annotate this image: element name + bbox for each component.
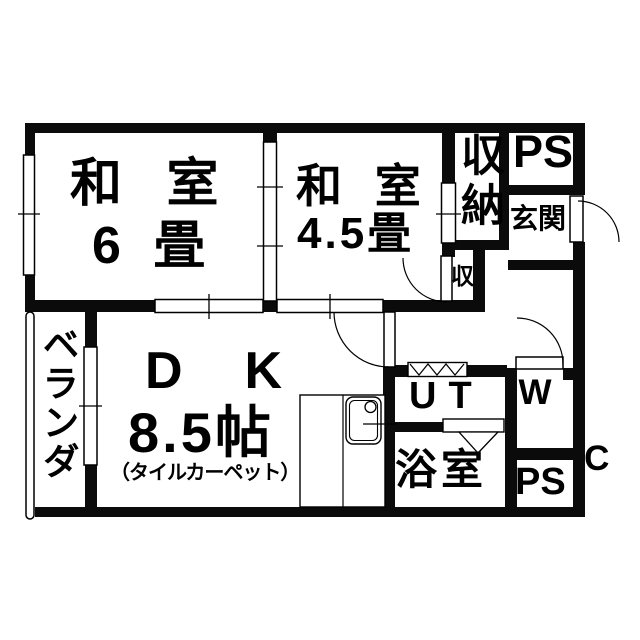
- wall-ps-genkan-divider: [499, 185, 585, 195]
- wall-bottom: [35, 507, 585, 517]
- window-washitsu6-left: [24, 155, 35, 275]
- door-arc-genkan: [578, 201, 619, 242]
- wall-wc-top-stub: [563, 368, 573, 380]
- wall-closet-right: [473, 250, 485, 302]
- label-washitsu45-name: 和 室: [296, 163, 421, 209]
- wall-ut-bath-divider: [395, 422, 443, 432]
- veranda-rail: [26, 312, 34, 519]
- label-wc-line2: C: [584, 439, 609, 478]
- label-genkan: 玄関: [510, 205, 566, 233]
- label-washitsu6-size: 6 畳: [92, 220, 205, 272]
- label-dk-size: 8.5帖: [128, 405, 274, 461]
- floorplan-drawing: [0, 0, 640, 640]
- label-dk-name: DK: [145, 345, 344, 397]
- wall-partition-stub: [263, 133, 277, 142]
- folding-door-bath: [443, 419, 504, 432]
- label-ps-top: PS: [513, 129, 573, 174]
- wall-right-upper: [573, 123, 585, 195]
- label-washitsu45-size: 4.5畳: [297, 212, 414, 256]
- label-washitsu6-name: 和 室: [70, 158, 218, 210]
- wall-dk-left-b: [85, 465, 97, 517]
- label-bath: 浴室: [395, 449, 487, 491]
- door-leaf-dk: [384, 312, 395, 367]
- wall-ut-top-a: [395, 365, 408, 377]
- sliding-door-partition: [264, 142, 277, 301]
- label-dk-note: （タイルカーペット）: [110, 463, 299, 483]
- wall-genkan-step: [508, 260, 573, 270]
- floorplan: 和 室 6 畳 和 室 4.5畳 DK 8.5帖 （タイルカーペット） 収納 P…: [0, 0, 640, 640]
- door-leaf-wc: [516, 357, 563, 369]
- label-ut: UT: [409, 377, 484, 415]
- door-leaf-genkan: [570, 196, 583, 242]
- faucet-icon: [365, 402, 376, 413]
- wall-mid-c: [383, 300, 485, 312]
- label-storage-small: 収: [451, 265, 474, 288]
- wall-mid-a: [25, 300, 155, 312]
- label-ps-bottom: PS: [515, 463, 566, 501]
- label-storage: 収納: [456, 132, 500, 232]
- label-veranda: ベランダ: [39, 325, 76, 481]
- wall-mid-stub: [263, 300, 277, 312]
- wall-left-upper-a: [25, 123, 35, 155]
- label-wc-line1: W: [518, 373, 551, 412]
